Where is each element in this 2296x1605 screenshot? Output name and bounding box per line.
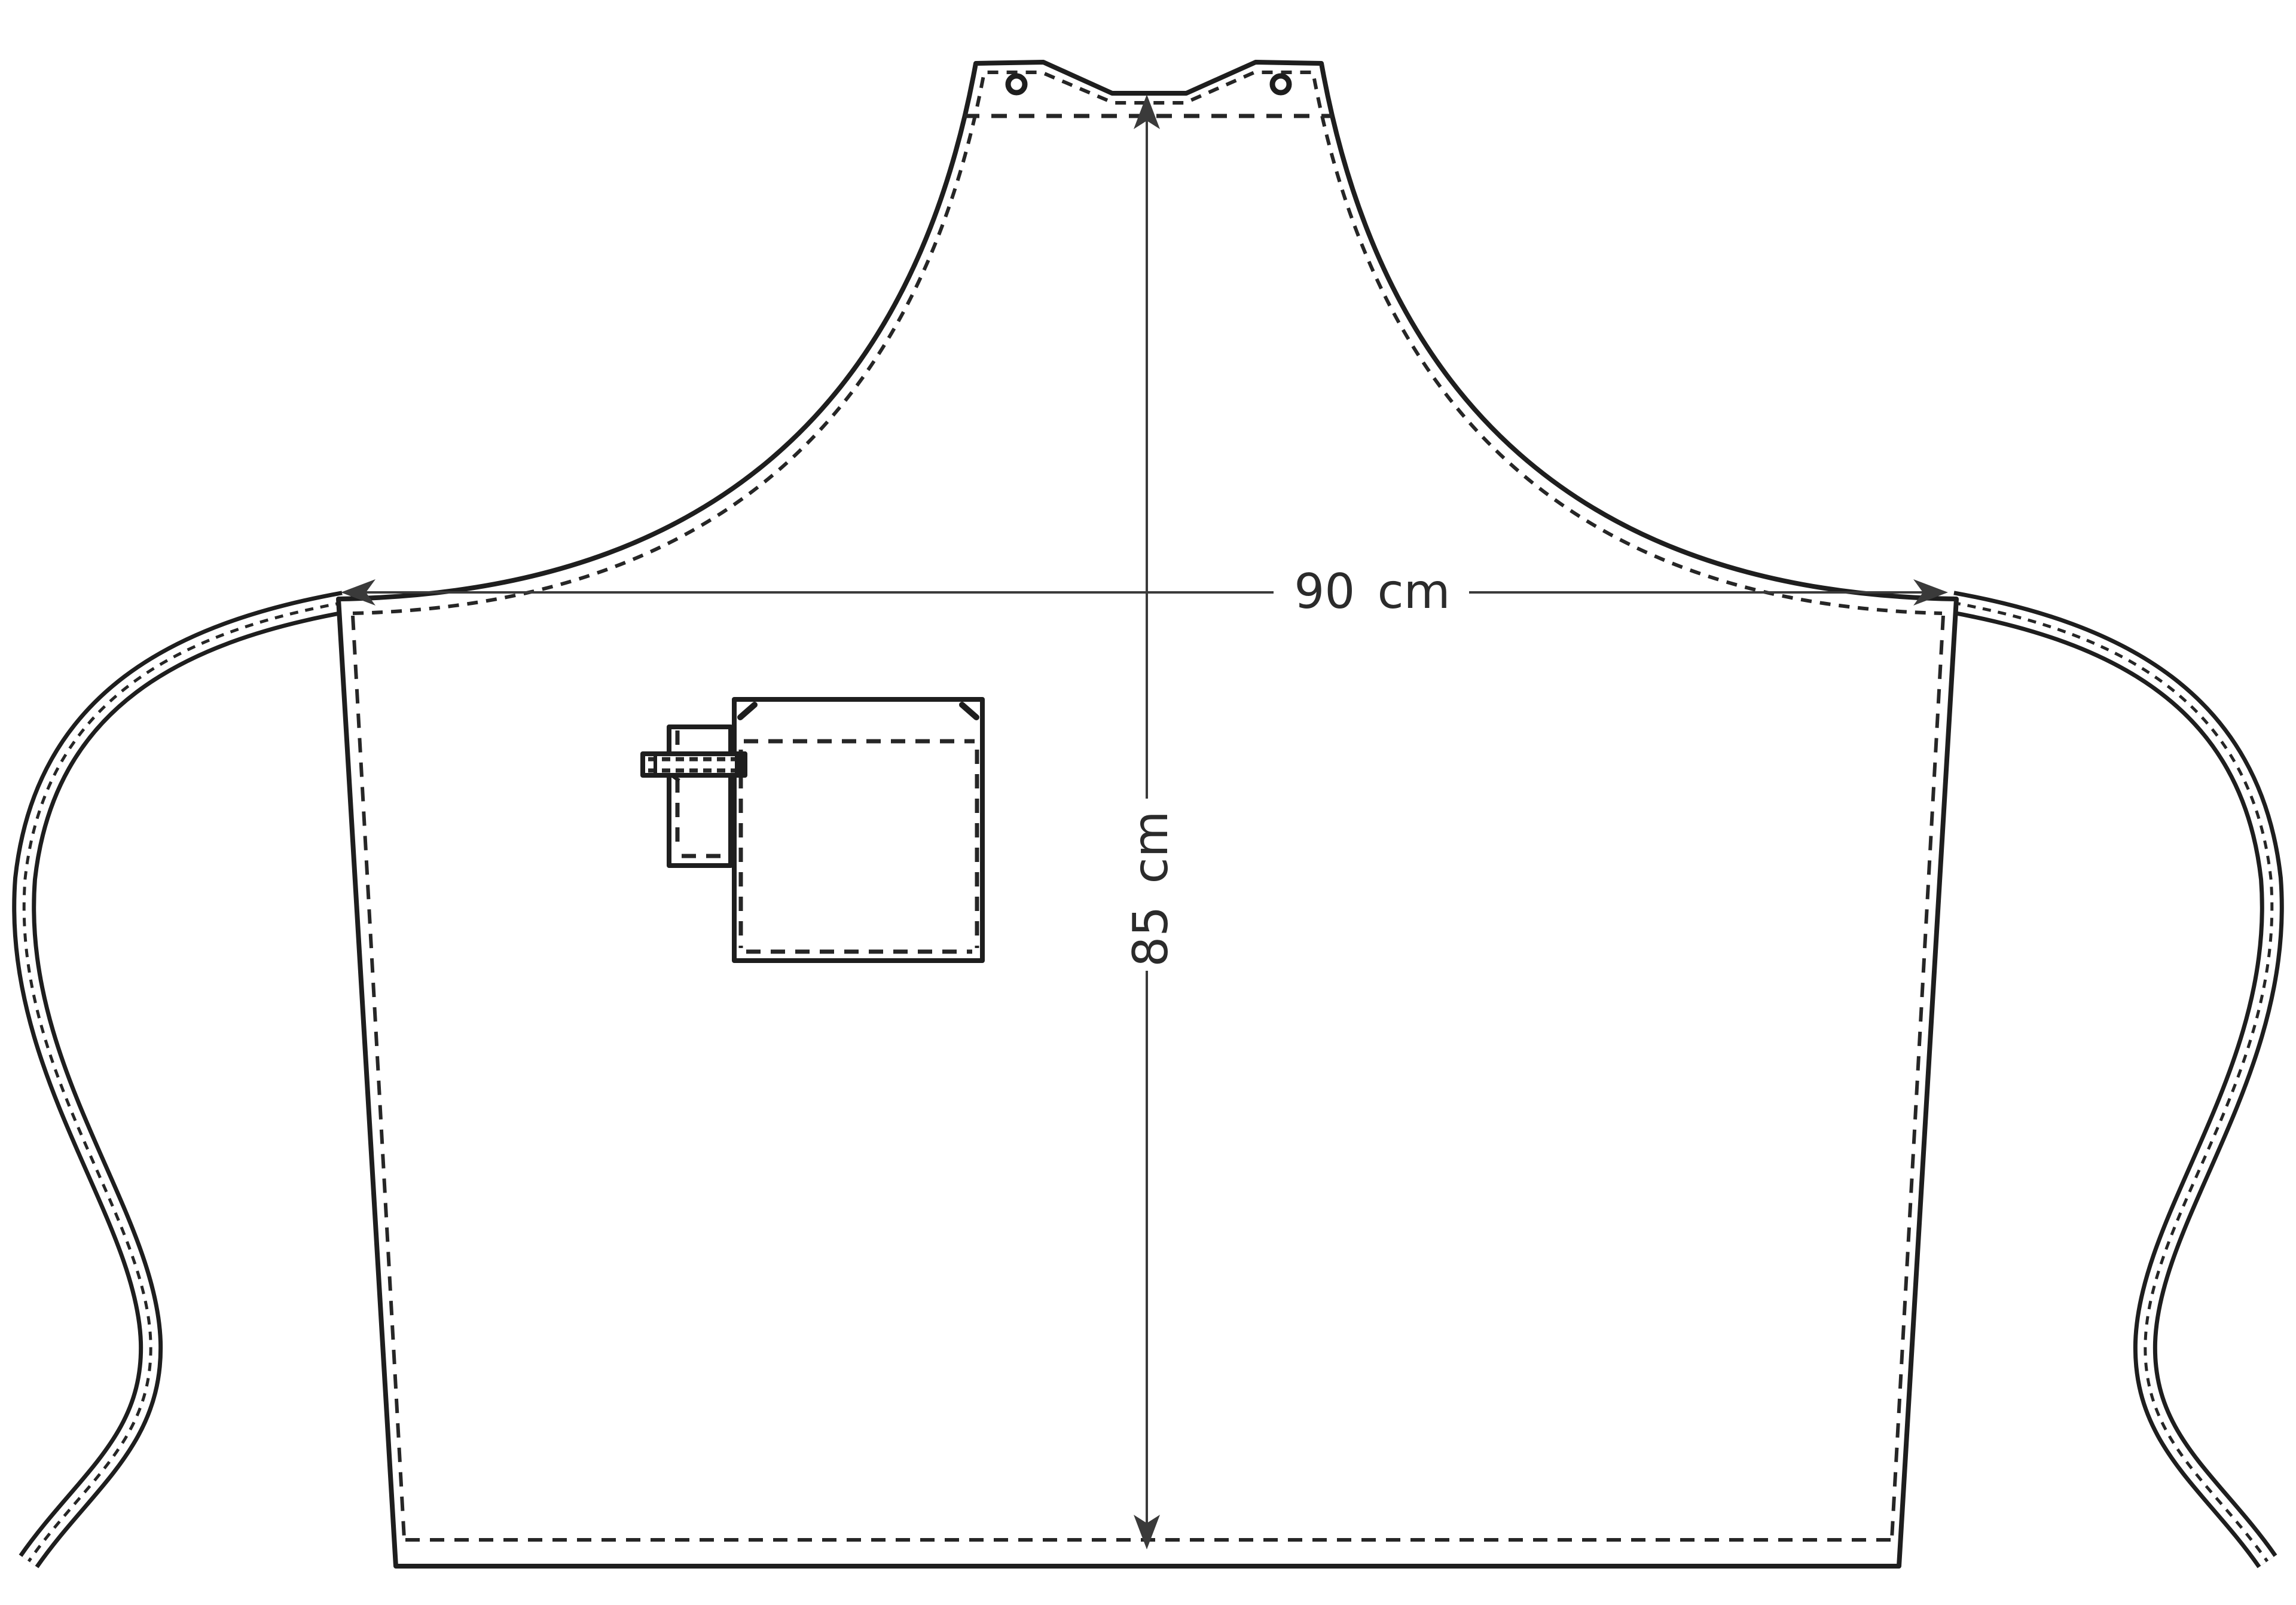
height-dimension-label: 85 cm [1123,811,1178,967]
pocket-outline [734,699,982,961]
band-end-bar [735,751,746,777]
loop-band [643,751,746,781]
towel-loop-strap [669,727,731,866]
apron-technical-drawing: 90 cm 85 cm [0,0,2296,1605]
chest-pocket [734,699,982,961]
width-dimension-label: 90 cm [1294,564,1450,619]
apron-diagram: 90 cm 85 cm [0,0,2296,1605]
strap-outline [669,727,731,866]
right-waist-tie [1952,603,2272,1561]
left-waist-tie [24,603,344,1561]
right-grommet-icon [1272,76,1289,93]
left-grommet-icon [1008,76,1025,93]
